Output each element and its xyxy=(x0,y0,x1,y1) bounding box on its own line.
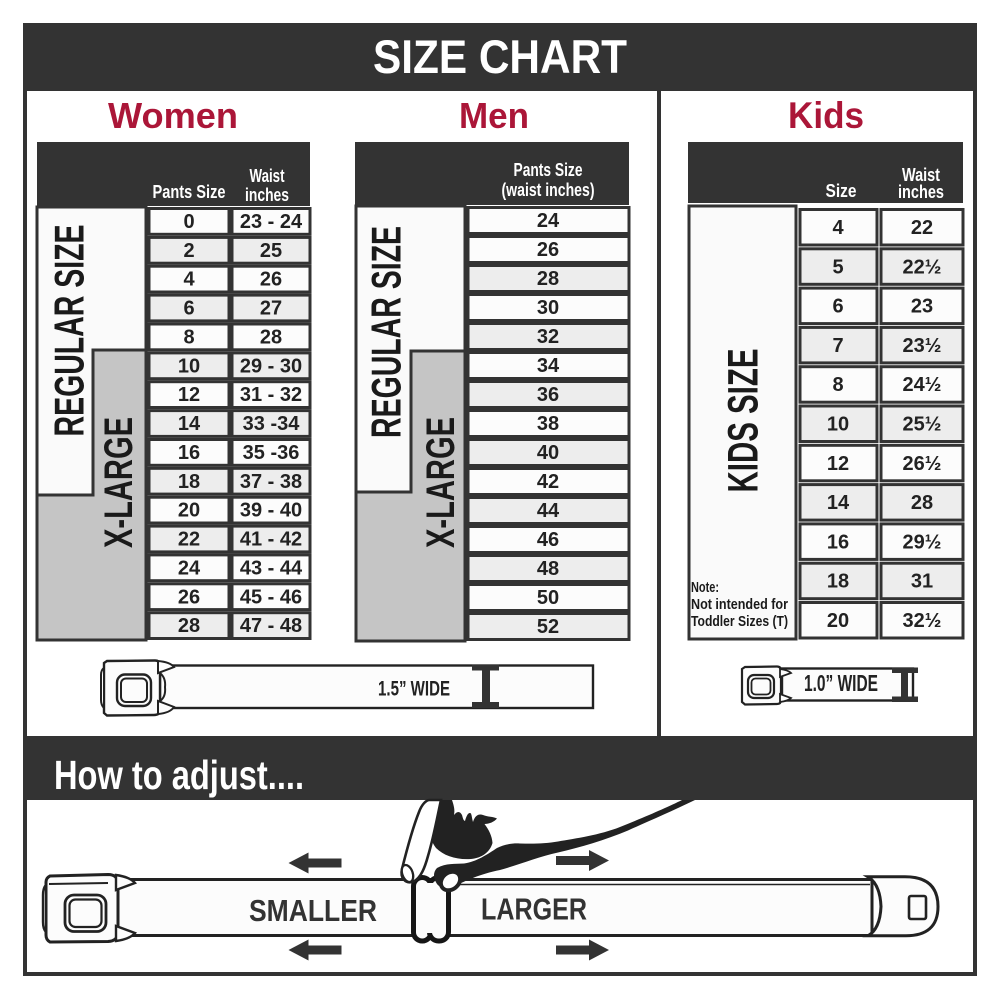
svg-text:34: 34 xyxy=(537,355,560,377)
svg-text:1.0” WIDE: 1.0” WIDE xyxy=(804,670,878,696)
svg-text:8: 8 xyxy=(832,374,843,396)
svg-text:8: 8 xyxy=(183,326,194,348)
svg-text:43 - 44: 43 - 44 xyxy=(240,557,303,579)
svg-text:inches: inches xyxy=(245,185,289,205)
svg-text:48: 48 xyxy=(537,558,559,580)
svg-text:12: 12 xyxy=(178,384,200,406)
svg-text:Toddler Sizes (T): Toddler Sizes (T) xyxy=(691,613,788,630)
svg-text:16: 16 xyxy=(827,531,849,553)
svg-text:REGULAR SIZE: REGULAR SIZE xyxy=(46,225,93,437)
svg-text:18: 18 xyxy=(178,471,200,493)
svg-text:22½: 22½ xyxy=(903,256,942,278)
svg-text:X-LARGE: X-LARGE xyxy=(97,417,141,548)
svg-text:25½: 25½ xyxy=(903,414,942,436)
svg-text:29½: 29½ xyxy=(903,531,942,553)
svg-text:36: 36 xyxy=(537,384,559,406)
svg-text:16: 16 xyxy=(178,442,200,464)
svg-text:23 - 24: 23 - 24 xyxy=(240,211,303,233)
svg-text:45 - 46: 45 - 46 xyxy=(240,586,302,608)
svg-text:LARGER: LARGER xyxy=(481,892,587,927)
svg-text:Waist: Waist xyxy=(250,166,285,186)
svg-text:29 - 30: 29 - 30 xyxy=(240,355,302,377)
svg-text:6: 6 xyxy=(183,298,194,320)
svg-text:10: 10 xyxy=(827,414,849,436)
svg-text:24: 24 xyxy=(537,210,560,232)
svg-text:40: 40 xyxy=(537,442,559,464)
svg-text:14: 14 xyxy=(178,413,201,435)
svg-text:Women: Women xyxy=(108,95,238,136)
svg-text:6: 6 xyxy=(832,296,843,318)
svg-text:Pants Size: Pants Size xyxy=(514,160,583,180)
svg-text:4: 4 xyxy=(183,269,195,291)
svg-text:Pants Size: Pants Size xyxy=(153,182,226,202)
svg-text:12: 12 xyxy=(827,453,849,475)
svg-text:52: 52 xyxy=(537,616,559,638)
svg-text:5: 5 xyxy=(832,256,843,278)
svg-text:50: 50 xyxy=(537,587,559,609)
svg-text:26: 26 xyxy=(260,269,282,291)
svg-text:1.5” WIDE: 1.5” WIDE xyxy=(378,678,450,701)
svg-text:Note:: Note: xyxy=(691,579,719,596)
svg-text:30: 30 xyxy=(537,297,559,319)
svg-text:10: 10 xyxy=(178,355,200,377)
svg-text:37 - 38: 37 - 38 xyxy=(240,471,302,493)
svg-text:SIZE CHART: SIZE CHART xyxy=(373,30,627,83)
svg-text:23½: 23½ xyxy=(903,335,942,357)
svg-text:32½: 32½ xyxy=(903,610,942,632)
svg-text:4: 4 xyxy=(832,217,844,239)
svg-text:20: 20 xyxy=(827,610,849,632)
svg-text:46: 46 xyxy=(537,529,559,551)
svg-text:28: 28 xyxy=(260,326,282,348)
svg-text:KIDS SIZE: KIDS SIZE xyxy=(720,349,768,493)
svg-text:SMALLER: SMALLER xyxy=(249,893,377,928)
svg-text:47 - 48: 47 - 48 xyxy=(240,615,302,637)
svg-text:44: 44 xyxy=(537,500,560,522)
svg-text:25: 25 xyxy=(260,240,282,262)
svg-text:33 -34: 33 -34 xyxy=(243,413,301,435)
svg-text:Size: Size xyxy=(826,181,857,201)
svg-text:31: 31 xyxy=(911,571,933,593)
svg-text:24½: 24½ xyxy=(903,374,942,396)
svg-text:39 - 40: 39 - 40 xyxy=(240,500,302,522)
svg-text:26: 26 xyxy=(178,586,200,608)
svg-text:2: 2 xyxy=(183,240,194,262)
svg-text:32: 32 xyxy=(537,326,559,348)
svg-text:20: 20 xyxy=(178,500,200,522)
svg-text:22: 22 xyxy=(911,217,933,239)
svg-text:inches: inches xyxy=(898,182,944,202)
svg-text:28: 28 xyxy=(178,615,200,637)
svg-text:41 - 42: 41 - 42 xyxy=(240,529,302,551)
svg-text:(waist inches): (waist inches) xyxy=(502,180,595,200)
svg-text:31 - 32: 31 - 32 xyxy=(240,384,302,406)
svg-text:Kids: Kids xyxy=(788,95,864,136)
svg-text:26½: 26½ xyxy=(903,453,942,475)
svg-text:38: 38 xyxy=(537,413,559,435)
svg-text:27: 27 xyxy=(260,298,282,320)
svg-text:28: 28 xyxy=(537,268,559,290)
svg-text:42: 42 xyxy=(537,471,559,493)
svg-text:7: 7 xyxy=(832,335,843,357)
svg-text:18: 18 xyxy=(827,571,849,593)
svg-text:26: 26 xyxy=(537,239,559,261)
svg-text:35 -36: 35 -36 xyxy=(243,442,300,464)
svg-text:REGULAR SIZE: REGULAR SIZE xyxy=(363,226,410,438)
svg-text:24: 24 xyxy=(178,557,201,579)
svg-text:X-LARGE: X-LARGE xyxy=(419,417,463,548)
svg-text:28: 28 xyxy=(911,492,933,514)
svg-text:22: 22 xyxy=(178,529,200,551)
svg-text:14: 14 xyxy=(827,492,850,514)
svg-text:Men: Men xyxy=(459,95,529,136)
svg-text:0: 0 xyxy=(183,211,194,233)
svg-text:How to adjust....: How to adjust.... xyxy=(54,752,304,798)
svg-text:23: 23 xyxy=(911,296,933,318)
svg-text:Not intended for: Not intended for xyxy=(691,596,788,613)
